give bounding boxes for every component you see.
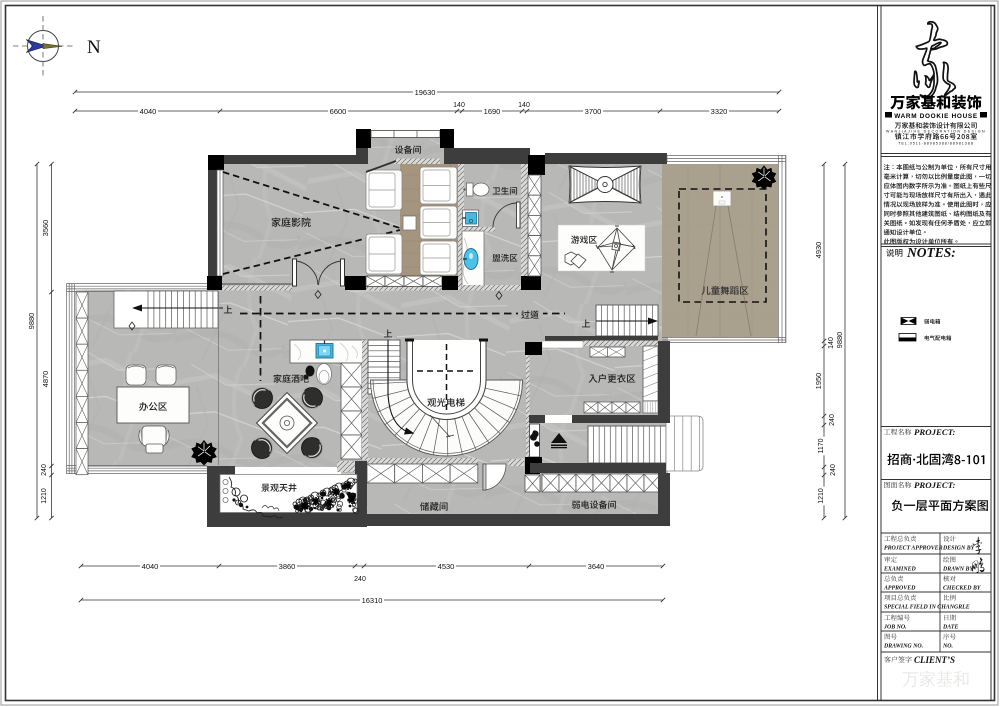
svg-text:3320: 3320 <box>711 107 728 116</box>
svg-text:DESIGN BY: DESIGN BY <box>942 546 976 552</box>
svg-text:3700: 3700 <box>585 107 602 116</box>
svg-text:240: 240 <box>41 464 48 476</box>
svg-text:1210: 1210 <box>41 488 48 504</box>
svg-text:DATE: DATE <box>942 625 958 631</box>
svg-text:1210: 1210 <box>818 488 825 504</box>
svg-text:PROJECT:: PROJECT: <box>914 480 955 490</box>
svg-text:SPECIAL FIELD IN CHANGRLE: SPECIAL FIELD IN CHANGRLE <box>884 605 970 611</box>
svg-text:DRAWING NO.: DRAWING NO. <box>883 644 923 650</box>
svg-text:4930: 4930 <box>814 242 823 259</box>
svg-text:PROJECT APPROVER: PROJECT APPROVER <box>884 546 943 552</box>
svg-text:WANJIAJIHE DECORATION DESIGN: WANJIAJIHE DECORATION DESIGN <box>886 130 986 134</box>
svg-text:4870: 4870 <box>41 371 50 388</box>
svg-text:240: 240 <box>829 414 836 426</box>
svg-text:16310: 16310 <box>362 596 383 605</box>
svg-text:3860: 3860 <box>279 562 296 571</box>
svg-text:1950: 1950 <box>814 373 823 390</box>
svg-text:JOB NO.: JOB NO. <box>883 625 907 631</box>
svg-text:EXAMINED: EXAMINED <box>883 567 917 573</box>
svg-text:9880: 9880 <box>835 332 844 349</box>
svg-text:240: 240 <box>830 464 837 476</box>
svg-text:1690: 1690 <box>484 107 501 116</box>
svg-text:4040: 4040 <box>142 562 159 571</box>
svg-text:3560: 3560 <box>41 220 50 237</box>
svg-text:APPROVED: APPROVED <box>883 586 916 592</box>
svg-text:3640: 3640 <box>588 562 605 571</box>
svg-text:140: 140 <box>828 337 835 349</box>
svg-text:CLIENT’S: CLIENT’S <box>914 655 955 665</box>
svg-text:19630: 19630 <box>415 88 436 97</box>
svg-text:9880: 9880 <box>27 313 36 330</box>
svg-text:1170: 1170 <box>818 438 825 453</box>
svg-text:NOTES:: NOTES: <box>906 245 956 260</box>
svg-text:4530: 4530 <box>438 562 455 571</box>
svg-text:PROJECT:: PROJECT: <box>914 427 955 437</box>
svg-text:WARM DOOKIE HOUSE: WARM DOOKIE HOUSE <box>894 113 978 120</box>
svg-text:N: N <box>87 37 101 58</box>
svg-text:140: 140 <box>453 102 465 109</box>
svg-text:DRAWN BY: DRAWN BY <box>942 567 974 573</box>
svg-text:140: 140 <box>518 102 530 109</box>
svg-text:4040: 4040 <box>140 107 157 116</box>
svg-text:6600: 6600 <box>330 107 347 116</box>
svg-text:CHECKED BY: CHECKED BY <box>943 586 982 592</box>
svg-text:TEL:0511-88985388/88981388: TEL:0511-88985388/88981388 <box>898 142 974 146</box>
svg-text:NO.: NO. <box>942 644 953 650</box>
svg-text:240: 240 <box>354 576 366 583</box>
